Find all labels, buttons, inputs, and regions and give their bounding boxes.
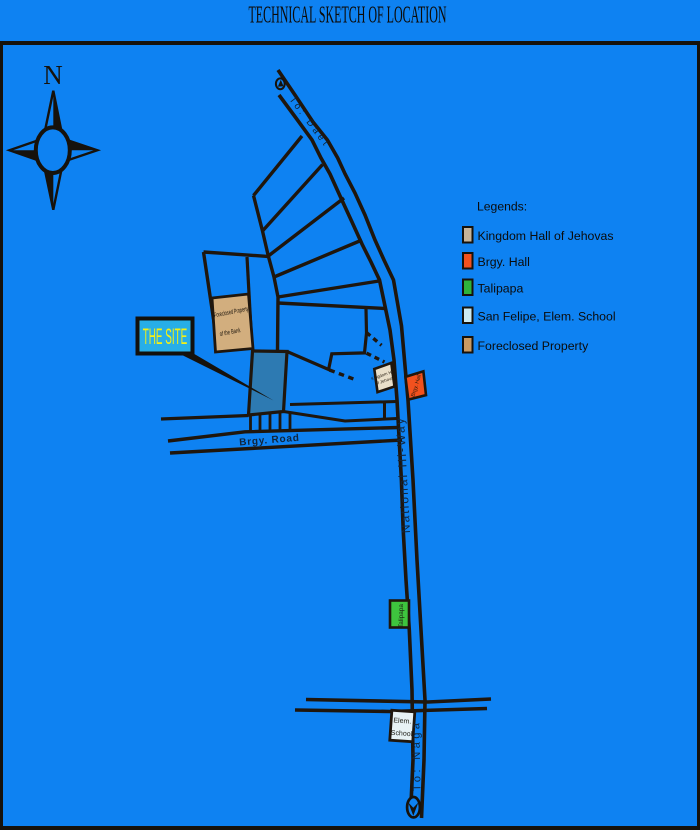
svg-text:Talipapa: Talipapa	[478, 282, 524, 296]
svg-text:Foreclosed Property: Foreclosed Property	[478, 339, 590, 353]
svg-text:Talipapa: Talipapa	[398, 604, 405, 628]
svg-text:Brgy. Hall: Brgy. Hall	[478, 255, 530, 269]
svg-text:N: N	[43, 60, 63, 90]
svg-text:Kingdom Hall of Jehovas: Kingdom Hall of Jehovas	[478, 229, 614, 243]
svg-text:Elem.: Elem.	[393, 717, 411, 725]
svg-text:THE SITE: THE SITE	[143, 324, 188, 349]
svg-text:TECHNICAL SKETCH OF LOCATION: TECHNICAL SKETCH OF LOCATION	[249, 1, 447, 28]
svg-text:Legends:: Legends:	[477, 200, 527, 214]
svg-text:San Felipe, Elem. School: San Felipe, Elem. School	[478, 310, 616, 324]
